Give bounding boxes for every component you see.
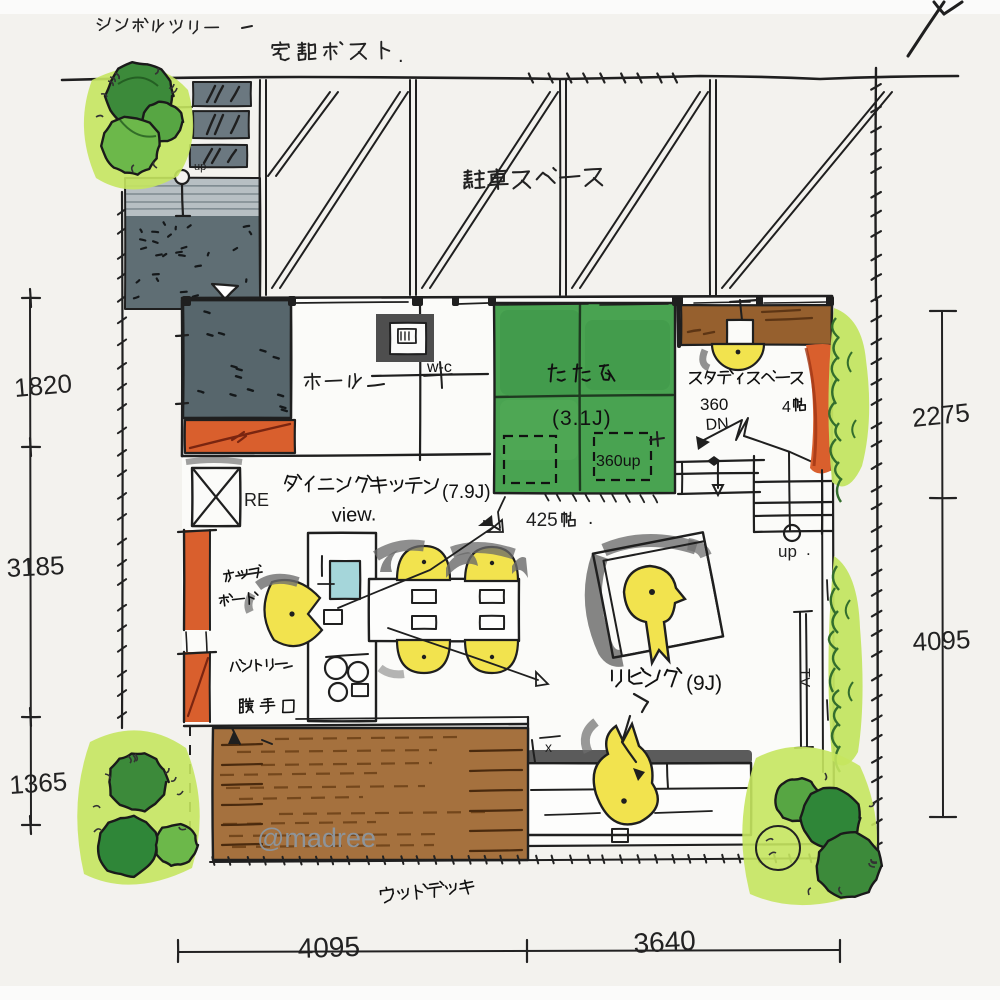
svg-text:@madree: @madree [257,823,376,853]
svg-text:4095: 4095 [912,624,971,657]
svg-text:3185: 3185 [6,550,65,583]
svg-text:TV: TV [796,668,813,687]
svg-text:1820: 1820 [13,368,73,403]
svg-text:DN: DN [705,415,729,434]
svg-text:up: up [194,161,206,173]
svg-text:(7.9J): (7.9J) [442,482,491,503]
svg-text:4: 4 [782,399,791,416]
svg-text:360: 360 [700,395,728,414]
svg-text:3640: 3640 [633,925,697,959]
svg-text:425: 425 [526,510,558,531]
svg-text:view.: view. [331,503,376,527]
svg-text:.: . [806,540,811,559]
svg-text:.: . [398,45,404,67]
svg-text:1365: 1365 [8,766,68,800]
svg-text:RE: RE [244,490,269,510]
svg-text:(3.1J): (3.1J) [552,407,612,430]
svg-text:2275: 2275 [910,397,971,433]
svg-text:(9J): (9J) [686,672,722,695]
svg-text:.: . [588,508,593,529]
svg-text:x: x [545,739,552,755]
svg-text:360up: 360up [596,453,641,470]
svg-text:up: up [778,542,797,561]
svg-text:4095: 4095 [297,931,360,964]
